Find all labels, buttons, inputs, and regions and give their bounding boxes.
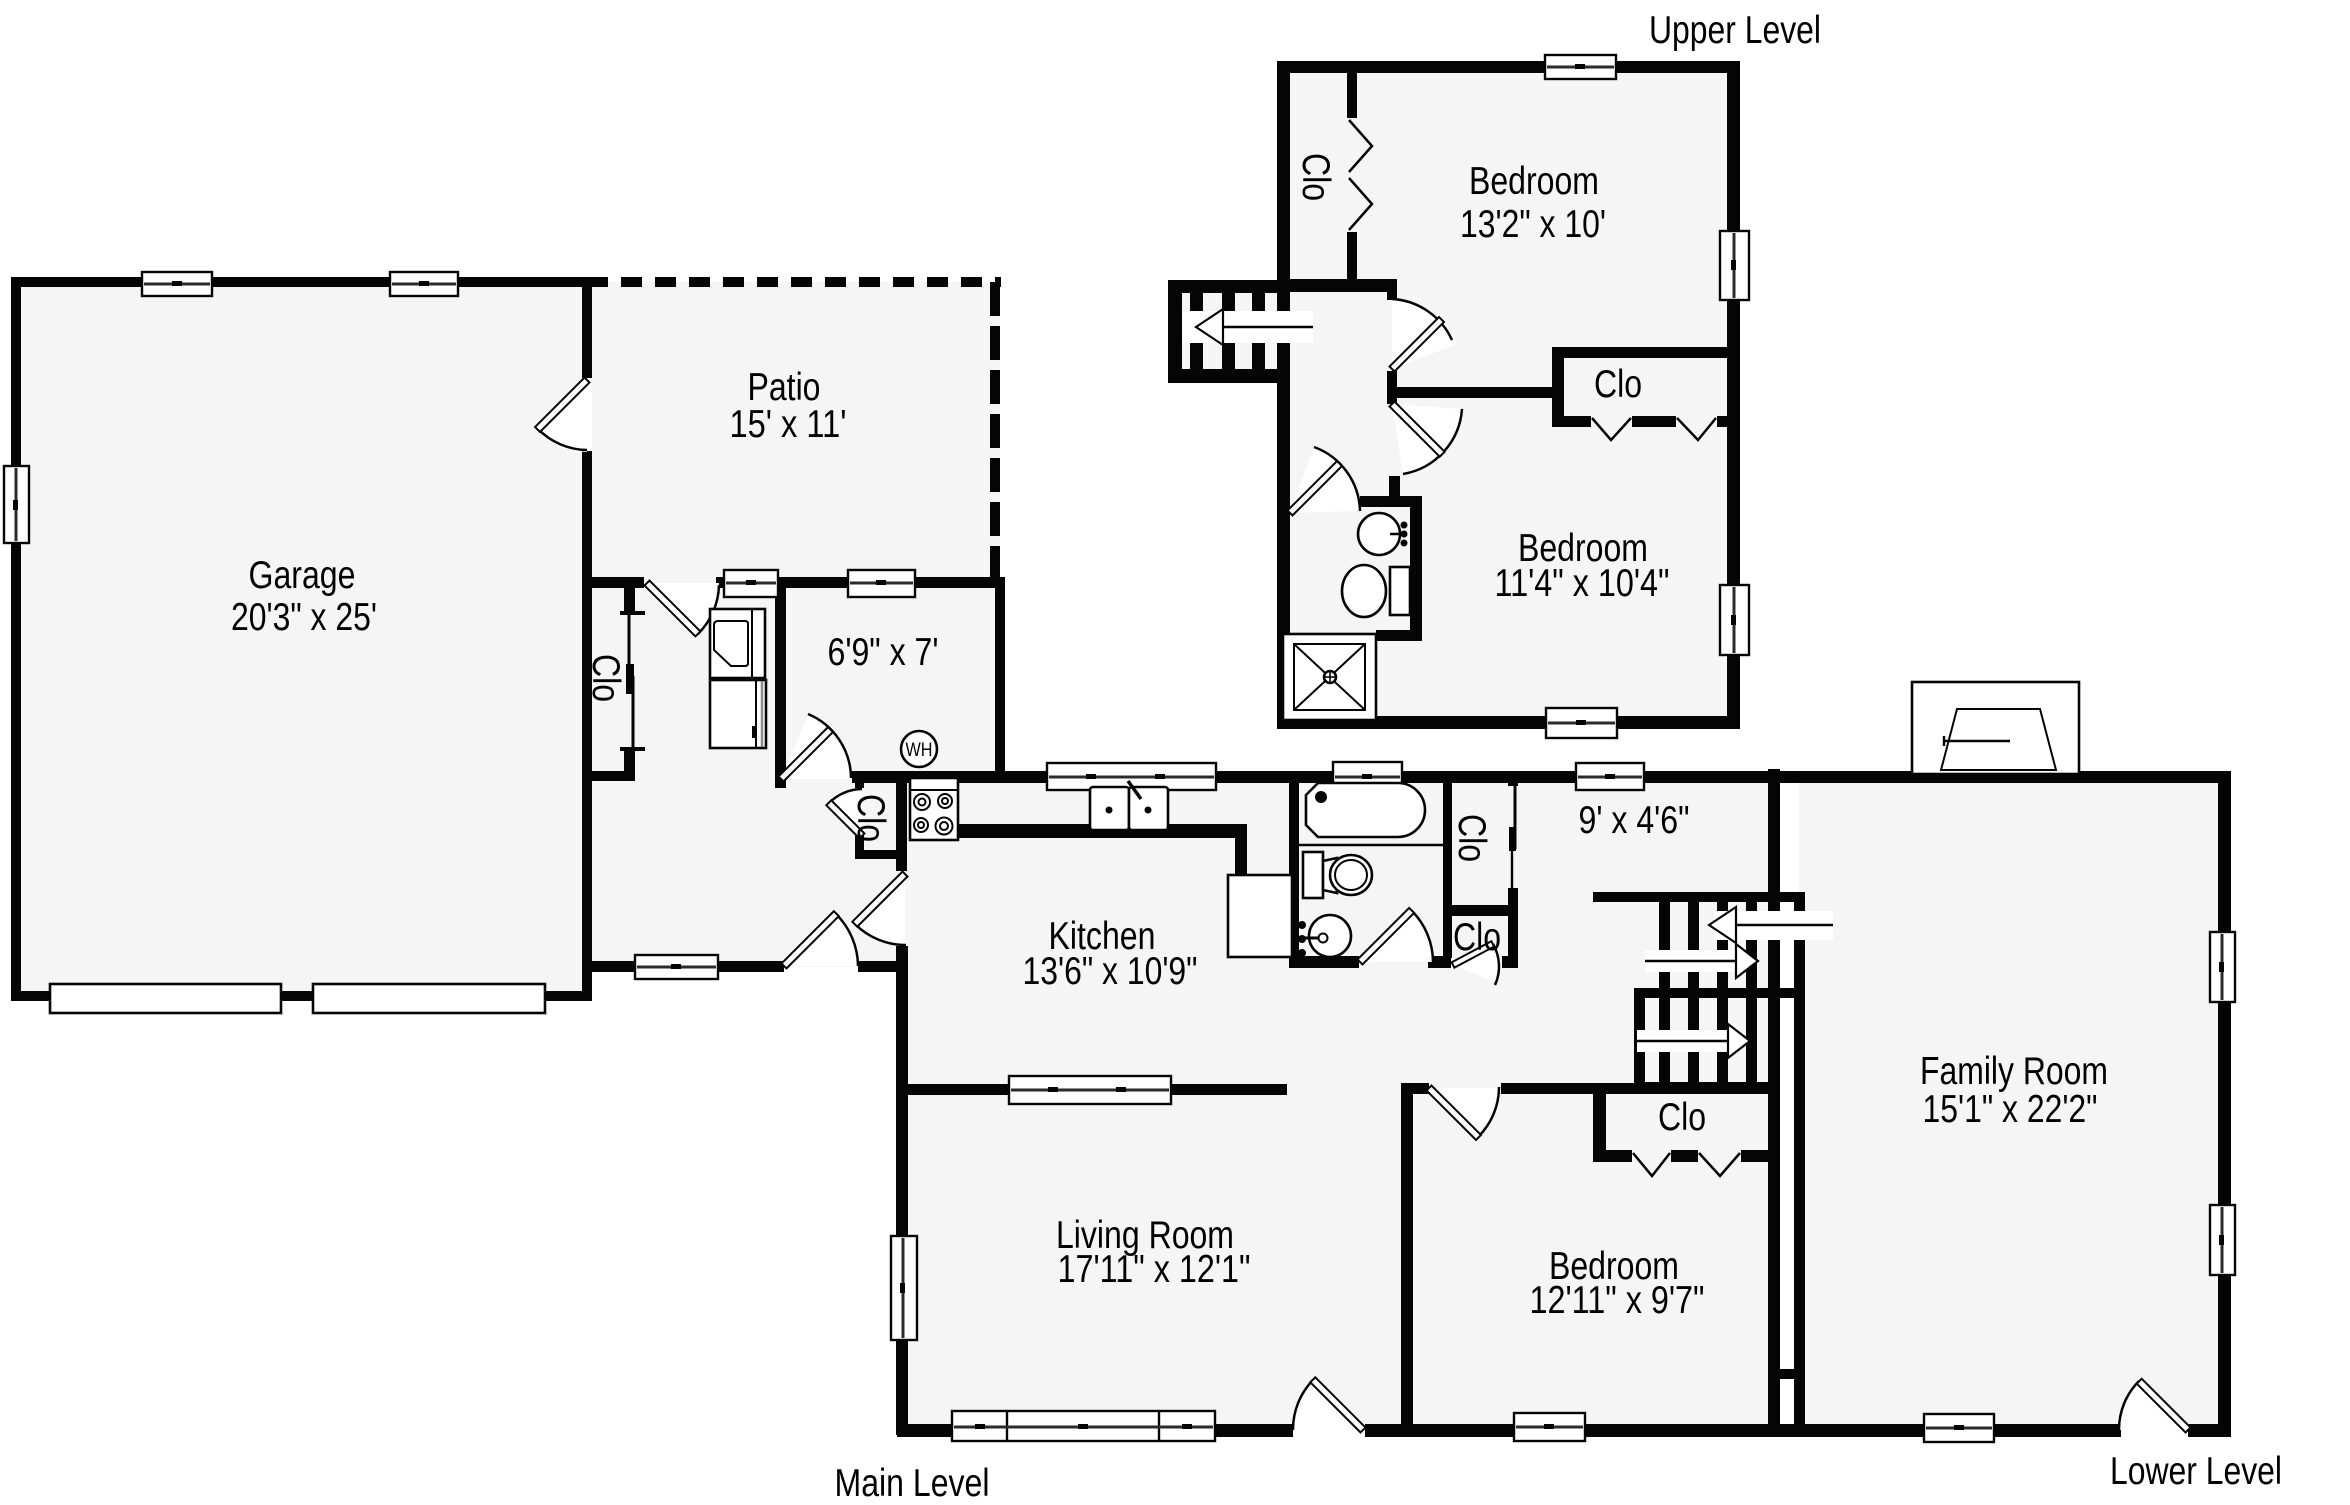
- svg-text:Clo: Clo: [849, 794, 892, 842]
- svg-text:Garage: Garage: [249, 554, 356, 597]
- svg-text:Clo: Clo: [1294, 153, 1337, 201]
- svg-text:11'4" x 10'4": 11'4" x 10'4": [1495, 562, 1670, 605]
- svg-text:13'2" x 10': 13'2" x 10': [1460, 203, 1606, 246]
- svg-text:20'3" x 25': 20'3" x 25': [231, 596, 377, 639]
- svg-text:9' x 4'6": 9' x 4'6": [1579, 799, 1690, 842]
- svg-text:17'11" x 12'1": 17'11" x 12'1": [1058, 1248, 1251, 1291]
- svg-text:Clo: Clo: [1450, 814, 1493, 862]
- svg-text:Clo: Clo: [1594, 363, 1642, 406]
- svg-text:6'9" x 7': 6'9" x 7': [828, 631, 939, 674]
- svg-text:15'1" x 22'2": 15'1" x 22'2": [1923, 1088, 2098, 1131]
- svg-text:Family Room: Family Room: [1920, 1050, 2108, 1093]
- svg-text:WH: WH: [906, 740, 933, 761]
- svg-text:Main Level: Main Level: [835, 1462, 990, 1505]
- svg-text:Upper Level: Upper Level: [1649, 9, 1821, 52]
- svg-text:12'11" x 9'7": 12'11" x 9'7": [1530, 1279, 1705, 1322]
- svg-text:15' x 11': 15' x 11': [730, 403, 847, 446]
- svg-text:Clo: Clo: [1453, 916, 1501, 959]
- svg-text:13'6" x 10'9": 13'6" x 10'9": [1023, 950, 1198, 993]
- svg-text:Bedroom: Bedroom: [1469, 160, 1599, 203]
- svg-text:Clo: Clo: [584, 654, 627, 702]
- svg-text:Lower Level: Lower Level: [2110, 1450, 2282, 1493]
- svg-text:Clo: Clo: [1658, 1096, 1706, 1139]
